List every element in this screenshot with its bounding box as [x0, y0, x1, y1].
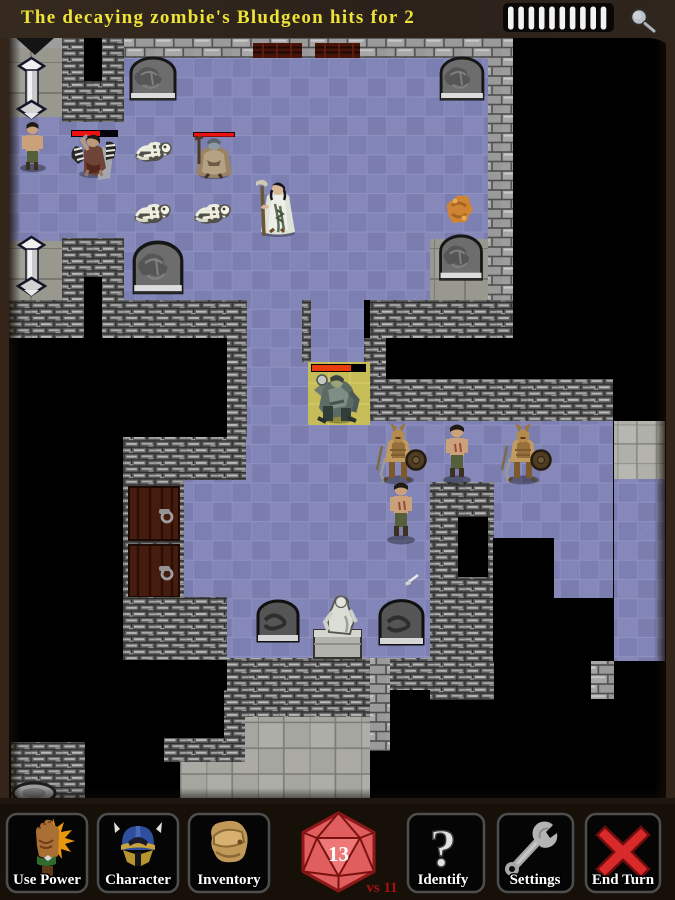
svg-text:The decaying zombie's Bludgeon: The decaying zombie's Bludgeon hits for … — [21, 7, 415, 28]
svg-text:13: 13 — [328, 842, 349, 866]
svg-text:End Turn: End Turn — [592, 872, 655, 888]
svg-text:Inventory: Inventory — [197, 872, 261, 888]
svg-text:Settings: Settings — [510, 872, 561, 888]
svg-text:Use Power: Use Power — [13, 872, 81, 888]
svg-text:Character: Character — [105, 872, 171, 888]
svg-text:vs 11: vs 11 — [366, 880, 397, 896]
svg-text:Identify: Identify — [418, 872, 469, 888]
svg-text:?: ? — [430, 818, 457, 878]
